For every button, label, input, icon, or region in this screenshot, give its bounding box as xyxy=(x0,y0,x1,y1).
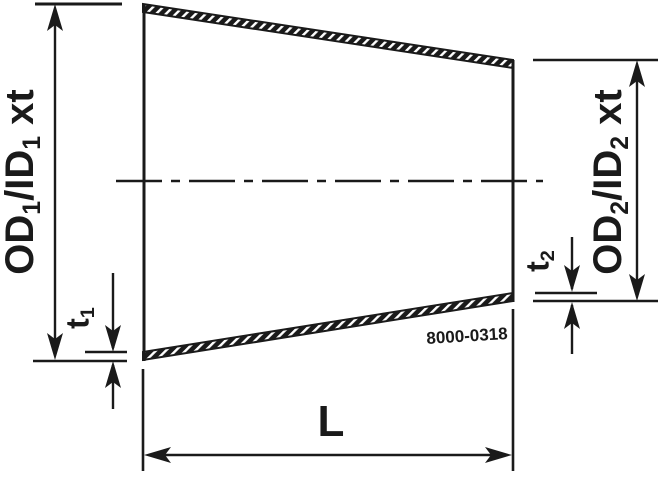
od2-label-subscript: 2 xyxy=(607,201,634,215)
t1-dimension xyxy=(85,273,127,409)
t1-label: t1 xyxy=(61,307,98,329)
t1-label-main: t xyxy=(59,318,95,329)
reducer-technical-drawing: OD1/ID1 xt OD2/ID2 xt t1 t2 L 8000-0318 xyxy=(0,0,659,477)
od2-label-suffix: xt xyxy=(586,89,630,136)
od1-label-subscript: 1 xyxy=(19,201,46,215)
t2-label-subscript: 2 xyxy=(537,250,559,261)
t2-label: t2 xyxy=(521,250,558,272)
od1-label: OD1/ID1 xt xyxy=(0,89,46,274)
od1-label-main: OD xyxy=(0,215,42,275)
od2-label: OD2/ID2 xt xyxy=(588,89,634,274)
top-wall-hatched xyxy=(143,4,513,68)
od2-label-main: OD xyxy=(586,215,630,275)
reducer-body xyxy=(116,4,543,361)
t2-label-main: t xyxy=(519,261,555,272)
od1-label-suffix: xt xyxy=(0,89,42,136)
t1-label-subscript: 1 xyxy=(77,307,99,318)
id1-label-main: /ID xyxy=(0,150,42,201)
length-label: L xyxy=(318,400,345,444)
id2-label-main: /ID xyxy=(586,150,630,201)
id2-label-subscript: 2 xyxy=(607,136,634,150)
part-number: 8000-0318 xyxy=(426,325,508,347)
id1-label-subscript: 1 xyxy=(19,136,46,150)
